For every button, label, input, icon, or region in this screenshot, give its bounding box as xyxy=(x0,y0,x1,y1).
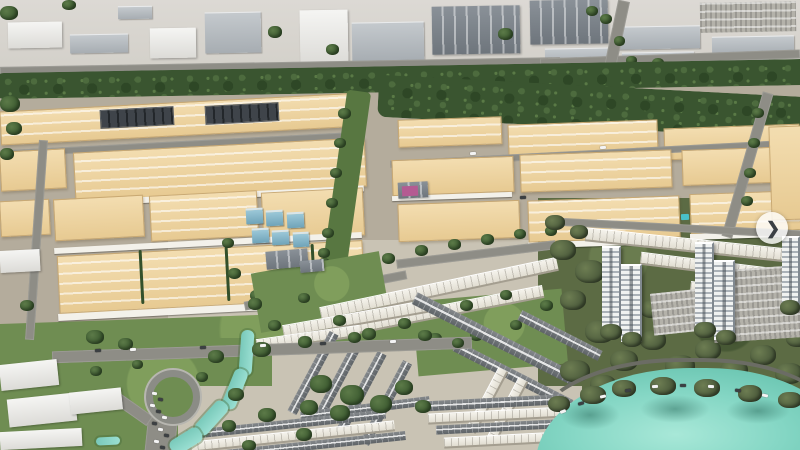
tree xyxy=(20,300,34,311)
factory-building xyxy=(118,6,152,20)
car xyxy=(200,346,206,349)
car xyxy=(390,340,396,343)
canal xyxy=(96,436,120,445)
tree xyxy=(338,108,351,119)
tree xyxy=(258,408,276,422)
tree xyxy=(208,350,224,363)
tree xyxy=(222,420,236,432)
tree xyxy=(744,168,756,178)
car xyxy=(150,404,155,408)
accent-building xyxy=(402,186,419,197)
car xyxy=(708,385,714,388)
factory-building xyxy=(352,21,425,61)
tree-olive xyxy=(548,396,570,412)
tree-olive xyxy=(560,290,586,310)
tree xyxy=(614,36,625,46)
tree xyxy=(415,245,428,256)
tree xyxy=(382,253,395,264)
tree xyxy=(322,228,334,238)
tree xyxy=(398,318,411,329)
car xyxy=(152,392,157,396)
tree xyxy=(318,248,330,258)
tree xyxy=(348,332,361,343)
tree xyxy=(228,388,244,401)
roundabout xyxy=(146,370,200,424)
tree-olive xyxy=(570,225,588,239)
apartment-block xyxy=(252,228,270,244)
tree xyxy=(222,238,234,248)
tree-olive xyxy=(780,300,800,315)
car xyxy=(260,344,266,347)
tree xyxy=(0,148,14,160)
tree-olive xyxy=(575,260,605,283)
warehouse-roof xyxy=(519,149,672,192)
car xyxy=(652,385,658,388)
apartment-tower xyxy=(695,242,714,332)
apartment-block xyxy=(246,208,264,225)
car xyxy=(156,410,161,414)
tree-olive xyxy=(778,392,800,408)
tree xyxy=(298,336,312,348)
tree-olive xyxy=(695,340,721,360)
tree xyxy=(268,320,281,331)
tree xyxy=(86,330,104,344)
white-building xyxy=(8,22,62,49)
apartment-block xyxy=(272,230,290,246)
masterplan-aerial-rendering: ❯ xyxy=(0,0,800,450)
tree xyxy=(62,0,76,10)
carousel-next-button[interactable]: ❯ xyxy=(756,212,788,244)
tree-olive xyxy=(694,322,716,338)
factory-building xyxy=(205,12,262,54)
tree xyxy=(228,268,241,279)
car xyxy=(160,446,165,450)
tree xyxy=(498,28,513,40)
tree-olive xyxy=(738,385,762,402)
warehouse-roof xyxy=(397,200,520,242)
car xyxy=(164,434,169,438)
apartment-block xyxy=(266,210,284,227)
tree xyxy=(242,440,256,450)
tree xyxy=(514,229,526,239)
car xyxy=(600,146,606,149)
apartment-tower xyxy=(782,236,800,310)
tree xyxy=(460,300,473,311)
tree xyxy=(296,428,312,441)
tree xyxy=(90,366,102,376)
tree xyxy=(326,44,339,55)
car xyxy=(152,422,157,426)
rooftop-units xyxy=(205,102,280,125)
tree xyxy=(586,6,598,16)
chevron-right-icon: ❯ xyxy=(766,220,780,237)
tree-olive xyxy=(600,324,622,340)
tree-olive xyxy=(694,379,720,397)
tree xyxy=(268,26,282,38)
tree xyxy=(310,375,332,393)
car xyxy=(680,384,686,387)
tree xyxy=(741,196,753,206)
tree xyxy=(132,360,143,369)
apartment-block xyxy=(287,212,305,229)
car xyxy=(154,440,159,444)
tree xyxy=(752,108,764,118)
tree xyxy=(330,405,350,421)
car xyxy=(162,416,167,420)
apartment-block xyxy=(293,232,310,248)
tree-olive xyxy=(622,332,642,347)
tree xyxy=(415,400,431,413)
parking-lot xyxy=(700,1,797,33)
car xyxy=(158,398,163,402)
shuttle-vehicle xyxy=(681,214,689,220)
tree-olive xyxy=(550,240,576,260)
tree-olive xyxy=(545,215,565,230)
tree xyxy=(0,96,20,112)
warehouse-roof xyxy=(149,190,259,242)
dark-roof-building xyxy=(300,259,325,273)
apartment-tower xyxy=(714,260,735,340)
tree xyxy=(0,6,18,20)
tree xyxy=(300,400,318,415)
tree xyxy=(340,385,364,405)
tree xyxy=(500,290,512,300)
tree xyxy=(333,315,346,326)
tree xyxy=(196,372,208,382)
white-building xyxy=(300,10,349,65)
tree xyxy=(540,300,553,311)
tree xyxy=(330,168,342,178)
car xyxy=(520,196,526,199)
tree xyxy=(448,239,461,250)
car xyxy=(735,389,741,393)
factory-building xyxy=(70,33,128,53)
white-building xyxy=(150,28,197,59)
warehouse-roof xyxy=(53,195,145,242)
warehouse-roof xyxy=(398,116,503,148)
car xyxy=(470,152,476,155)
rooftop-units xyxy=(100,106,175,129)
warehouse-roof xyxy=(768,125,800,220)
car xyxy=(320,342,326,345)
tree xyxy=(362,328,376,340)
tree xyxy=(600,14,612,24)
tree xyxy=(298,293,310,303)
tree xyxy=(370,395,392,413)
tree xyxy=(6,122,22,135)
tree xyxy=(248,298,262,310)
tree xyxy=(481,234,494,245)
tree xyxy=(395,380,413,395)
tree xyxy=(748,138,760,148)
tree-olive xyxy=(612,380,636,397)
tree xyxy=(334,138,346,148)
tree xyxy=(452,338,464,348)
apartment-tower xyxy=(621,264,642,342)
apartment-tower xyxy=(602,246,621,334)
tree xyxy=(326,198,338,208)
tree-olive xyxy=(716,330,736,345)
car xyxy=(130,348,136,351)
tree xyxy=(418,330,432,341)
white-building xyxy=(0,249,41,273)
car xyxy=(95,349,101,352)
factory-building xyxy=(612,25,700,50)
car xyxy=(158,428,163,432)
